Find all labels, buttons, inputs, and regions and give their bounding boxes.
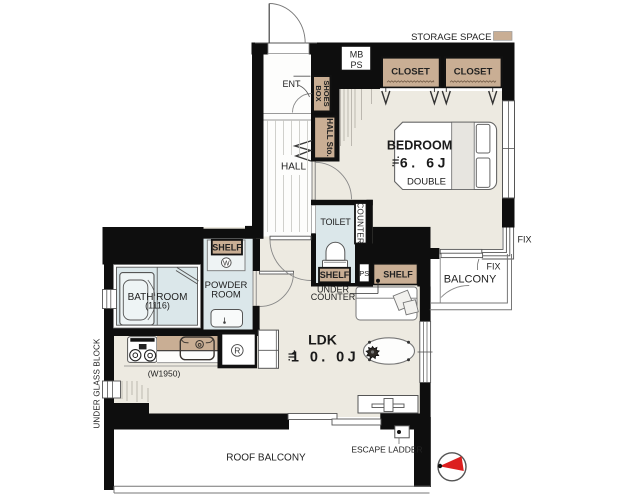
svg-text:CLOSET: CLOSET — [454, 67, 493, 78]
svg-text:HALL Sto.: HALL Sto. — [325, 118, 334, 157]
svg-text:6. 6J: 6. 6J — [400, 155, 449, 171]
svg-text:UNDER GLASS BLOCK: UNDER GLASS BLOCK — [93, 338, 102, 429]
svg-text:COUNTER: COUNTER — [355, 202, 364, 244]
svg-text:ROOF BALCONY: ROOF BALCONY — [226, 453, 306, 464]
svg-text:1 0. 0J: 1 0. 0J — [291, 350, 359, 366]
svg-text:(W1950): (W1950) — [148, 369, 181, 379]
svg-text:FIX: FIX — [487, 262, 501, 272]
svg-text:DOUBLE: DOUBLE — [407, 177, 446, 188]
svg-text:BALCONY: BALCONY — [444, 274, 497, 286]
svg-text:PS: PS — [359, 269, 369, 278]
svg-text:W: W — [223, 260, 230, 267]
svg-text:TOILET: TOILET — [320, 217, 351, 227]
svg-text:SHELF: SHELF — [212, 243, 242, 253]
svg-text:COUNTER: COUNTER — [311, 292, 356, 302]
svg-text:MB: MB — [350, 50, 364, 60]
svg-text:PS: PS — [350, 60, 362, 70]
svg-text:ROOM: ROOM — [211, 290, 241, 301]
svg-text:(1116): (1116) — [145, 301, 170, 311]
svg-text:LDK: LDK — [308, 332, 337, 348]
svg-text:BOX: BOX — [314, 85, 323, 101]
svg-text:SHELF: SHELF — [383, 270, 413, 280]
svg-text:SHELF: SHELF — [320, 270, 350, 280]
svg-text:HALL: HALL — [281, 162, 306, 173]
svg-text:BEDROOM: BEDROOM — [387, 139, 452, 153]
svg-text:ESCAPE LADDER: ESCAPE LADDER — [351, 445, 422, 455]
svg-text:STORAGE SPACE: STORAGE SPACE — [411, 32, 491, 43]
svg-text:CLOSET: CLOSET — [391, 67, 430, 78]
svg-text:ENT: ENT — [283, 79, 302, 89]
svg-text:R: R — [234, 345, 240, 355]
svg-text:FIX: FIX — [518, 235, 532, 245]
